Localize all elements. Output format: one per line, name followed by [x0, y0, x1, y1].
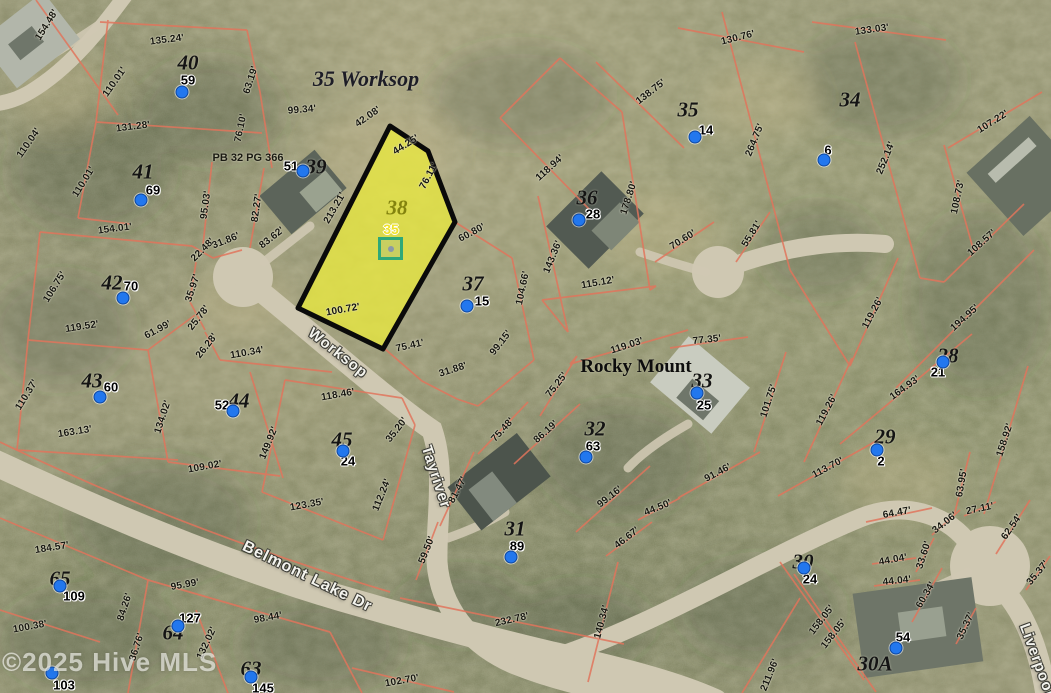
- dimension-label: 44.04': [878, 552, 908, 568]
- dimension-label: 46.67': [612, 525, 641, 551]
- dimension-label: 84.26': [115, 592, 134, 623]
- pin-number-label: 109: [63, 589, 85, 604]
- dimension-label: 112.24': [371, 477, 394, 512]
- dimension-label: 163.13': [57, 424, 93, 440]
- dimension-label: 76.10': [233, 113, 250, 143]
- street-label-belmont-lake-dr: Belmont Lake Dr: [239, 538, 375, 616]
- lot-number-34: 34: [840, 88, 861, 113]
- street-label-tayriver: Tayriver: [418, 443, 454, 510]
- dimension-label: 134.02': [152, 399, 173, 435]
- dimension-label: 133.03': [854, 22, 890, 38]
- dimension-label: 27.11': [965, 501, 995, 518]
- dimension-label: 99.16': [595, 484, 624, 510]
- dimension-label: 102.70': [384, 673, 420, 690]
- dimension-label: 143.36': [541, 239, 564, 275]
- street-label-liverpool: Liverpool: [1016, 621, 1051, 693]
- parcel-pin-dot[interactable]: [54, 580, 67, 593]
- dimension-label: 44.04': [882, 574, 912, 588]
- dimension-label: 44.25': [391, 133, 421, 157]
- dimension-label: 91.46': [703, 461, 733, 484]
- dimension-label: 106.75': [41, 270, 69, 305]
- dimension-label: 131.28': [115, 119, 150, 134]
- dimension-label: 31.88': [438, 360, 469, 379]
- dimension-label: 211.96': [759, 657, 782, 692]
- dimension-label: 44.50': [643, 498, 674, 519]
- dimension-label: 154.48': [33, 8, 61, 43]
- dimension-label: 35.37': [955, 611, 977, 642]
- pin-number-label: 60: [104, 380, 118, 395]
- dimension-label: 62.54': [999, 512, 1024, 542]
- subject-marker-number: 35: [383, 221, 399, 237]
- dimension-label: 119.26': [860, 295, 886, 330]
- dimension-label: 55.81': [740, 219, 764, 249]
- pin-number-label: 103: [53, 678, 75, 693]
- dimension-label: 99.15': [488, 328, 514, 357]
- dimension-label: 115.12': [580, 275, 615, 292]
- dimension-label: 154.01': [97, 221, 132, 236]
- dimension-label: 264.75': [743, 122, 766, 158]
- pin-number-label: 145: [252, 681, 274, 693]
- dimension-label: 83.62': [257, 225, 286, 251]
- lot-number-35: 35: [678, 98, 699, 123]
- dimension-label: 59.50': [417, 535, 438, 566]
- parcel-pin-dot[interactable]: [337, 445, 350, 458]
- parcel-pin-dot[interactable]: [172, 620, 185, 633]
- street-label-worksop: Worksop: [305, 324, 371, 381]
- dimension-label: 101.75': [758, 383, 779, 419]
- dimension-label: 108.73': [949, 179, 967, 215]
- parcel-pin-dot[interactable]: [297, 165, 310, 178]
- dimension-label: 107.22': [976, 108, 1011, 136]
- map-title: 35 Worksop: [313, 66, 419, 92]
- parcel-pin-dot[interactable]: [117, 292, 130, 305]
- dimension-label: 75.25': [544, 370, 570, 399]
- dimension-label: 158.92': [994, 422, 1015, 458]
- dimension-label: 113.70': [810, 455, 845, 481]
- lot-number-38: 38: [387, 196, 408, 221]
- dimension-label: 60.34': [914, 580, 938, 610]
- parcel-pin-dot[interactable]: [176, 86, 189, 99]
- dimension-label: 35.37': [1025, 559, 1051, 588]
- parcel-pin-dot[interactable]: [135, 194, 148, 207]
- dimension-label: 99.34': [287, 103, 316, 116]
- dimension-label: 33.60': [914, 540, 933, 571]
- pin-number-label: 28: [586, 207, 600, 222]
- dimension-label: 26.28': [194, 331, 220, 360]
- parcel-pin-dot[interactable]: [818, 154, 831, 167]
- parcel-pin-dot[interactable]: [461, 300, 474, 313]
- plat-book-reference: PB 32 PG 366: [213, 152, 284, 164]
- dimension-label: 82.27': [250, 193, 265, 223]
- parcel-pin-dot[interactable]: [871, 444, 884, 457]
- dimension-label: 35.20': [384, 415, 410, 444]
- dimension-label: 34.06': [930, 510, 959, 536]
- subject-property-marker[interactable]: [378, 237, 403, 260]
- parcel-pin-dot[interactable]: [691, 387, 704, 400]
- dimension-label: 64.47': [882, 505, 912, 521]
- dimension-label: 149.92': [257, 425, 280, 461]
- dimension-label: 119.52': [64, 319, 99, 335]
- dimension-label: 61.99': [143, 318, 173, 341]
- dimension-label: 35.97': [183, 273, 202, 304]
- dimension-label: 100.72': [325, 302, 361, 319]
- pin-number-label: 69: [146, 183, 160, 198]
- dimension-label: 63.19': [241, 65, 260, 96]
- dimension-label: 63.95': [954, 468, 970, 498]
- dimension-label: 110.34': [229, 345, 264, 362]
- dimension-label: 100.38': [12, 619, 48, 636]
- pin-number-label: 25: [697, 398, 711, 413]
- dimension-label: 110.01': [70, 165, 97, 200]
- dimension-label: 31.86': [211, 231, 242, 252]
- area-label-rocky-mount: Rocky Mount: [580, 356, 691, 378]
- dimension-label: 135.24': [149, 32, 184, 47]
- dimension-label: 110.01': [101, 65, 129, 99]
- dimension-label: 110.04': [15, 126, 43, 160]
- map-labels-layer: 154.48'135.24'110.01'63.19'131.28'76.10'…: [0, 0, 1051, 693]
- dimension-label: 118.46': [320, 387, 355, 404]
- mls-watermark: ©2025 Hive MLS: [2, 647, 217, 678]
- dimension-label: 70.60': [668, 228, 698, 252]
- dimension-label: 123.35': [289, 497, 325, 514]
- parcel-pin-dot[interactable]: [890, 642, 903, 655]
- dimension-label: 140.34': [592, 604, 612, 640]
- parcel-pin-dot[interactable]: [937, 356, 950, 369]
- dimension-label: 98.44': [253, 610, 283, 626]
- dimension-label: 75.48': [489, 416, 516, 445]
- dimension-label: 108.57': [966, 227, 999, 258]
- dimension-label: 164.93': [888, 373, 922, 402]
- marker-center-dot: [388, 246, 394, 252]
- lot-number-30a: 30A: [857, 652, 892, 677]
- parcel-pin-dot[interactable]: [505, 551, 518, 564]
- dimension-label: 119.26': [814, 392, 840, 427]
- dimension-label: 95.03': [199, 190, 214, 220]
- dimension-label: 119.03': [609, 336, 645, 357]
- dimension-label: 130.76': [720, 29, 756, 48]
- dimension-label: 95.99': [170, 577, 200, 593]
- dimension-label: 42.08': [353, 104, 383, 129]
- dimension-label: 77.35': [692, 333, 722, 347]
- dimension-label: 104.66': [514, 270, 532, 306]
- dimension-label: 60.80': [457, 221, 487, 244]
- parcel-pin-dot[interactable]: [580, 451, 593, 464]
- dimension-label: 138.75': [634, 77, 668, 107]
- dimension-label: 213.21': [322, 190, 349, 225]
- dimension-label: 118.94': [534, 153, 566, 184]
- dimension-label: 252.14': [874, 140, 897, 176]
- dimension-label: 194.95': [949, 302, 982, 333]
- parcel-pin-dot[interactable]: [94, 391, 107, 404]
- dimension-label: 75.41': [395, 337, 425, 354]
- parcel-pin-dot[interactable]: [798, 562, 811, 575]
- mls-aerial-parcel-map: 154.48'135.24'110.01'63.19'131.28'76.10'…: [0, 0, 1051, 693]
- parcel-pin-dot[interactable]: [227, 405, 240, 418]
- lot-number-41: 41: [133, 160, 154, 185]
- dimension-label: 178.80': [618, 180, 639, 216]
- dimension-label: 232.78': [494, 611, 530, 629]
- dimension-label: 184.57': [34, 540, 70, 556]
- dimension-label: 109.02': [187, 459, 223, 476]
- parcel-pin-dot[interactable]: [689, 131, 702, 144]
- dimension-label: 25.78': [186, 303, 212, 332]
- parcel-pin-dot[interactable]: [573, 214, 586, 227]
- parcel-pin-dot[interactable]: [245, 671, 258, 684]
- dimension-label: 86.19': [532, 418, 561, 445]
- pin-number-label: 15: [475, 294, 489, 309]
- dimension-label: 110.37': [13, 378, 40, 413]
- dimension-label: 76.11': [418, 161, 441, 191]
